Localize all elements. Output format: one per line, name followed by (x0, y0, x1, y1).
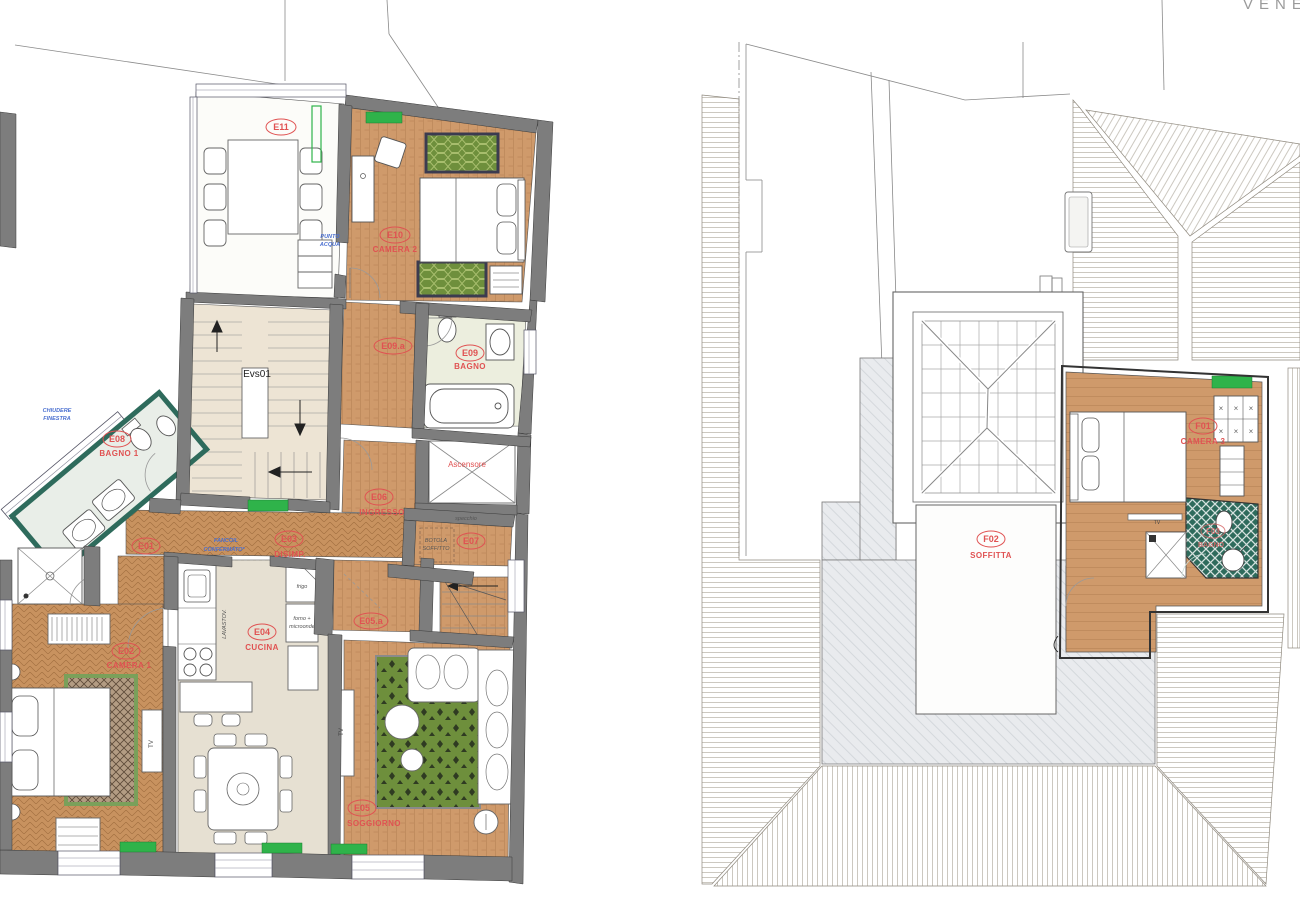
camera2-rug-bottom (418, 262, 486, 296)
bagno3-floor (1186, 498, 1258, 578)
tv-label-camera3: TV (1154, 520, 1161, 526)
oven-microwave (286, 604, 318, 642)
toilet-icon (438, 318, 456, 342)
frigo-label: frigo (297, 584, 308, 590)
room-name-f02: SOFFITTA (970, 551, 1012, 560)
forno-label-2: microonde (289, 624, 315, 630)
dining-table (208, 748, 278, 830)
room-label-f01: F01 (1195, 421, 1211, 431)
camera2-desk (352, 156, 374, 222)
tv-label-camera1: TV (149, 740, 155, 748)
botola-label-1: BOTOLA (425, 538, 448, 544)
room-label-e06: E06 (371, 492, 387, 502)
room-name-e10: CAMERA 2 (373, 245, 418, 254)
sofa-main (478, 650, 516, 804)
camera3-cabinet (1220, 446, 1244, 496)
chiudere-note-1: CHIUDERE (43, 408, 72, 414)
svg-text:×: × (1249, 427, 1254, 436)
specchio-label: specchio (455, 516, 477, 522)
sink-icon (1222, 549, 1244, 571)
coffee-table-large (385, 705, 419, 739)
room-label-e09a: E09.a (381, 341, 406, 351)
room-label-e11: E11 (273, 122, 289, 132)
elevator (429, 441, 515, 503)
shower-camera1 (18, 548, 82, 604)
room-label-e10: E10 (387, 230, 403, 240)
camera2-rug-top (426, 134, 498, 172)
radiator-marker (1212, 376, 1252, 388)
roof-plan: ××× ××× F01 CAMERA 3 F02 SOFFITTA F03 BA… (702, 0, 1300, 886)
stairwell-label: Evs01 (243, 369, 271, 380)
floor-plan-drawing: E11 E10 CAMERA 2 E09.a E09 BAGNO E08 BAG… (0, 0, 1300, 900)
room-name-e06: INGRESSO (359, 508, 404, 517)
room-name-f01: CAMERA 3 (1181, 437, 1226, 446)
svg-text:×: × (1219, 404, 1224, 413)
room-name-e09: BAGNO (454, 362, 486, 371)
apartment-plan: E11 E10 CAMERA 2 E09.a E09 BAGNO E08 BAG… (0, 0, 553, 884)
svg-text:×: × (1219, 427, 1224, 436)
room-name-e03: DISIMP. (274, 550, 306, 559)
room-label-e04: E04 (254, 627, 270, 637)
room-label-e05: E05 (354, 803, 370, 813)
roof-slope-left (702, 95, 820, 884)
forno-label-1: forno + (293, 616, 311, 622)
camera1-chest (56, 818, 100, 852)
room-label-f03: F03 (1206, 527, 1220, 536)
chiudere-note-2: FINESTRA (43, 416, 71, 422)
room-name-e05: SOGGIORNO (347, 819, 401, 828)
room-name-f03: BAGNO (1198, 542, 1225, 549)
svg-text:×: × (1234, 427, 1239, 436)
punto-acqua-note-2: ACQUA (319, 242, 340, 248)
e01-floor (118, 556, 164, 608)
location-header: VENEZIA (1243, 0, 1300, 13)
room-label-e05a: E05.a (359, 616, 384, 626)
corridor-e09a-floor (340, 302, 416, 428)
punto-acqua-note-1: PUNTO (320, 234, 340, 240)
floor-plan-sheet: E11 E10 CAMERA 2 E09.a E09 BAGNO E08 BAG… (0, 0, 1300, 900)
skylight (893, 292, 1083, 523)
room-label-f02: F02 (983, 534, 999, 544)
sink-icon (490, 329, 510, 355)
elevator-label: Ascensore (448, 460, 486, 469)
kitchen-cabinet (288, 646, 318, 690)
svg-text:×: × (1234, 404, 1239, 413)
room-label-e07: E07 (463, 536, 479, 546)
room-name-e08: BAGNO 1 (99, 449, 138, 458)
roof-edge-strip (1288, 368, 1300, 648)
botola-label-2: SOFFITTO (422, 546, 450, 552)
kitchen-island (180, 682, 252, 712)
fancoil-note-1: FANCOIL (214, 538, 239, 544)
room-label-e01: E01 (138, 541, 154, 551)
room-name-e02: CAMERA 1 (107, 661, 152, 670)
room-label-e09: E09 (462, 348, 478, 358)
room-label-e03: E03 (281, 534, 297, 544)
fancoil-note-2: CONFERMATO* (203, 547, 245, 553)
room-label-e02: E02 (118, 646, 134, 656)
room-name-e04: CUCINA (245, 643, 279, 652)
terrace-table (228, 140, 298, 234)
svg-text:×: × (1249, 404, 1254, 413)
coffee-table-small (401, 749, 423, 771)
room-label-e08: E08 (109, 434, 125, 444)
tv-label-soggiorno: TV (339, 728, 345, 736)
lavastoviglie-label: LAVASTOV. (222, 609, 228, 639)
